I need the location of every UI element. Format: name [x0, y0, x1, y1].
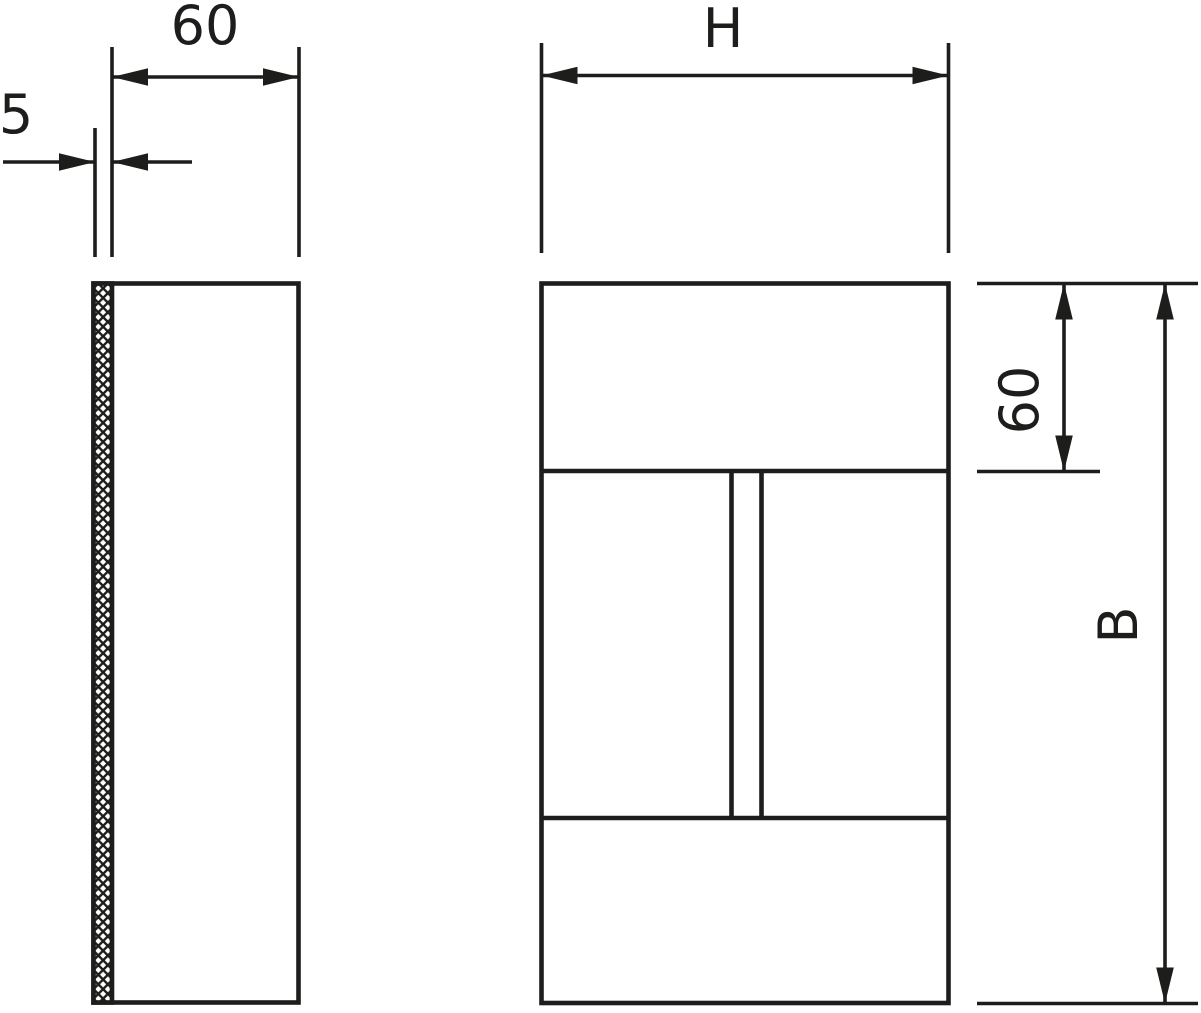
front-view-body: [542, 284, 949, 1004]
arrowhead-left: [112, 153, 148, 171]
overall-height-dim-label: B: [1087, 606, 1150, 643]
arrowhead-up: [1055, 284, 1073, 320]
arrowhead-down: [1055, 436, 1073, 472]
arrowhead-right: [913, 67, 949, 85]
arrowhead-right: [263, 68, 299, 86]
h-dim-label: H: [703, 0, 744, 60]
arrowhead-right: [59, 153, 95, 171]
seal-strip-hatched: [94, 284, 113, 1003]
side-width-dim-label: 60: [171, 0, 240, 57]
technical-drawing: 60 5 H 60 B: [0, 0, 1201, 1013]
thickness-dim-label: 5: [0, 83, 33, 146]
arrowhead-left: [542, 67, 578, 85]
arrowhead-down: [1156, 968, 1174, 1004]
side-view-body: [94, 284, 299, 1003]
arrowhead-up: [1156, 284, 1174, 320]
top-section-dim-label: 60: [988, 366, 1051, 435]
drawing-canvas: 60 5 H 60 B: [0, 0, 1201, 1013]
arrowhead-left: [112, 68, 148, 86]
